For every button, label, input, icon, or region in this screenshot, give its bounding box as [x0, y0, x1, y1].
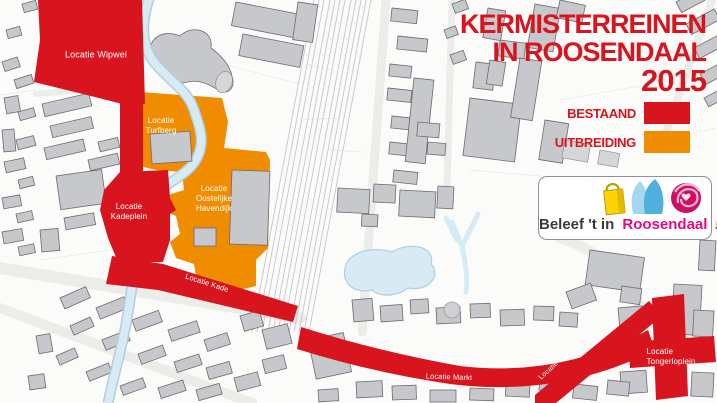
label-oostelijke-havendijk: Locatie Oostelijke Havendijk — [196, 184, 232, 214]
legend-row-uitbreiding: UITBREIDING — [555, 131, 690, 153]
title-line-2: IN ROOSENDAAL — [460, 38, 706, 66]
legend-swatch-red — [644, 102, 690, 124]
legend-swatch-orange — [644, 131, 690, 153]
rose-icon — [671, 183, 701, 213]
legend-row-bestaand: BESTAAND — [555, 102, 690, 124]
label-wipwei: Locatie Wipwei — [65, 49, 127, 60]
logo-brand: Roosendaal — [622, 216, 707, 233]
logo-prefix: Beleef 't in — [539, 216, 614, 233]
label-markt: Locatie Markt — [426, 372, 473, 383]
area-wipwei-kadeplein-link — [120, 90, 143, 172]
label-turfberg: Locatie Turfberg — [146, 116, 177, 136]
label-tongerloplein: Locatie Tongerloplein — [647, 347, 696, 367]
legend-label-bestaand: BESTAAND — [567, 106, 636, 121]
roosendaal-logo: Beleef 't in Roosendaal ! — [538, 176, 712, 240]
title-line-1: KERMISTERREINEN — [460, 10, 706, 38]
page-title: KERMISTERREINEN IN ROOSENDAAL 2015 — [460, 10, 706, 96]
blue-figures-icon — [632, 179, 664, 214]
legend: BESTAAND UITBREIDING — [555, 102, 690, 160]
legend-label-uitbreiding: UITBREIDING — [555, 135, 636, 150]
label-kadeplein: Locatie Kadeplein — [111, 202, 148, 222]
kermis-map-page: Locatie Wipwei Locatie Turfberg Locatie … — [0, 0, 717, 403]
title-year: 2015 — [460, 66, 706, 96]
shopping-bag-icon — [603, 183, 625, 215]
logo-text: Beleef 't in Roosendaal ! — [539, 214, 707, 234]
park-pond — [344, 246, 434, 295]
